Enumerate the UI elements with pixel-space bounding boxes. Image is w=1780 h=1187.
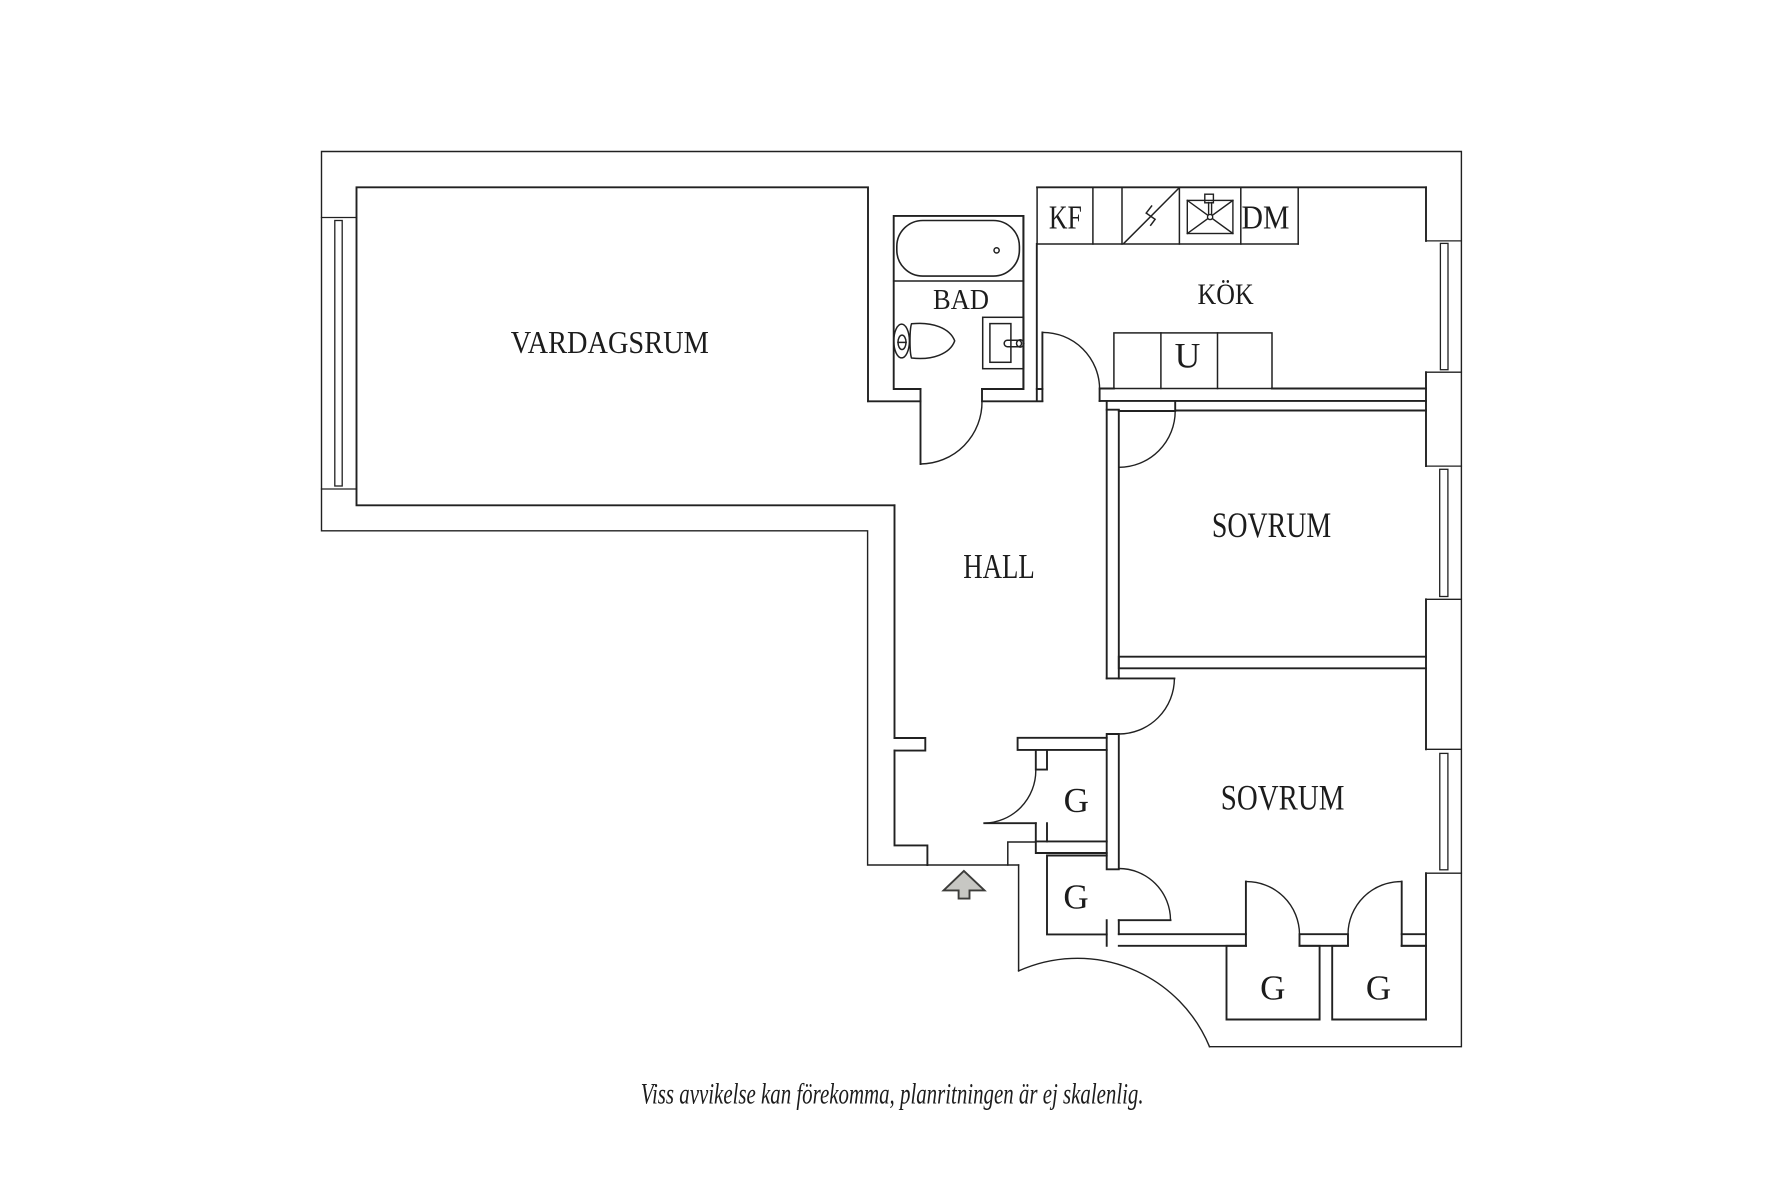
svg-text:SOVRUM: SOVRUM <box>1221 777 1345 817</box>
svg-text:SOVRUM: SOVRUM <box>1212 505 1331 545</box>
svg-text:G: G <box>1064 781 1089 820</box>
svg-text:DM: DM <box>1242 200 1290 237</box>
svg-text:VARDAGSRUM: VARDAGSRUM <box>511 325 709 360</box>
svg-text:KÖK: KÖK <box>1198 278 1254 311</box>
svg-text:HALL: HALL <box>963 547 1035 586</box>
svg-text:Viss avvikelse kan förekomma,: Viss avvikelse kan förekomma, planritnin… <box>641 1077 1144 1110</box>
svg-text:KF: KF <box>1049 199 1082 236</box>
svg-text:BAD: BAD <box>933 285 989 316</box>
svg-text:G: G <box>1063 878 1088 917</box>
svg-text:U: U <box>1175 335 1201 375</box>
svg-text:G: G <box>1260 968 1285 1007</box>
svg-text:G: G <box>1366 968 1391 1007</box>
